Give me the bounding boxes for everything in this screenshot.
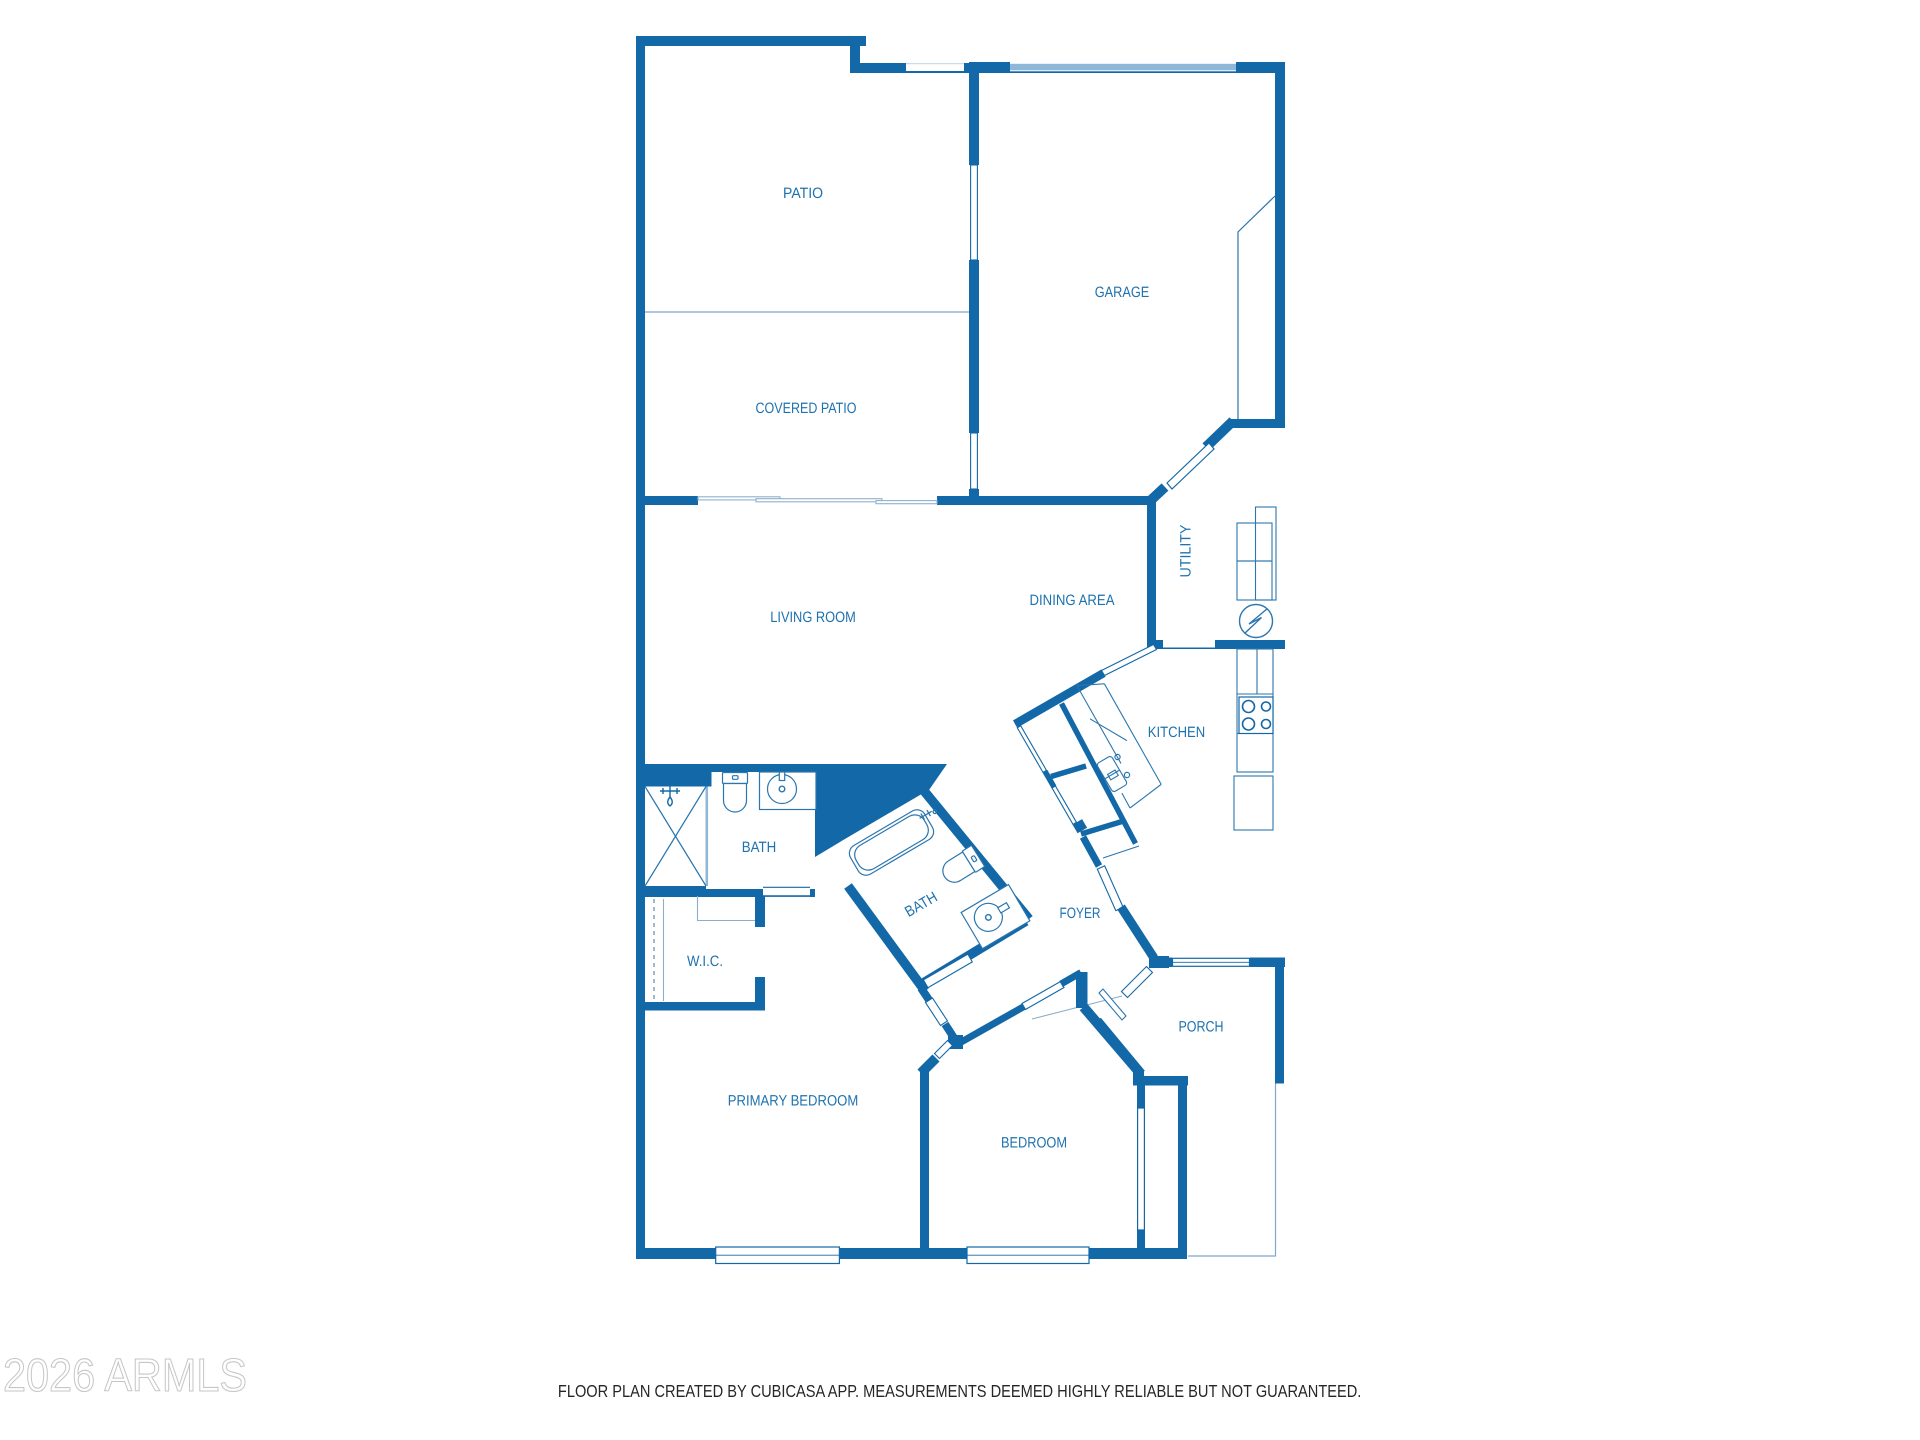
svg-text:DINING AREA: DINING AREA (1030, 592, 1115, 609)
svg-text:GARAGE: GARAGE (1095, 284, 1150, 301)
svg-text:PATIO: PATIO (783, 185, 823, 202)
svg-text:FOYER: FOYER (1060, 905, 1101, 922)
svg-text:COVERED PATIO: COVERED PATIO (756, 400, 857, 417)
svg-text:LIVING ROOM: LIVING ROOM (770, 609, 856, 626)
svg-text:BATH: BATH (742, 839, 777, 856)
svg-text:W.I.C.: W.I.C. (687, 953, 723, 970)
svg-text:UTILITY: UTILITY (1178, 525, 1195, 578)
svg-text:BEDROOM: BEDROOM (1001, 1135, 1067, 1152)
svg-text:PORCH: PORCH (1179, 1019, 1224, 1036)
svg-text:PRIMARY BEDROOM: PRIMARY BEDROOM (728, 1093, 859, 1110)
svg-text:KITCHEN: KITCHEN (1148, 724, 1206, 741)
